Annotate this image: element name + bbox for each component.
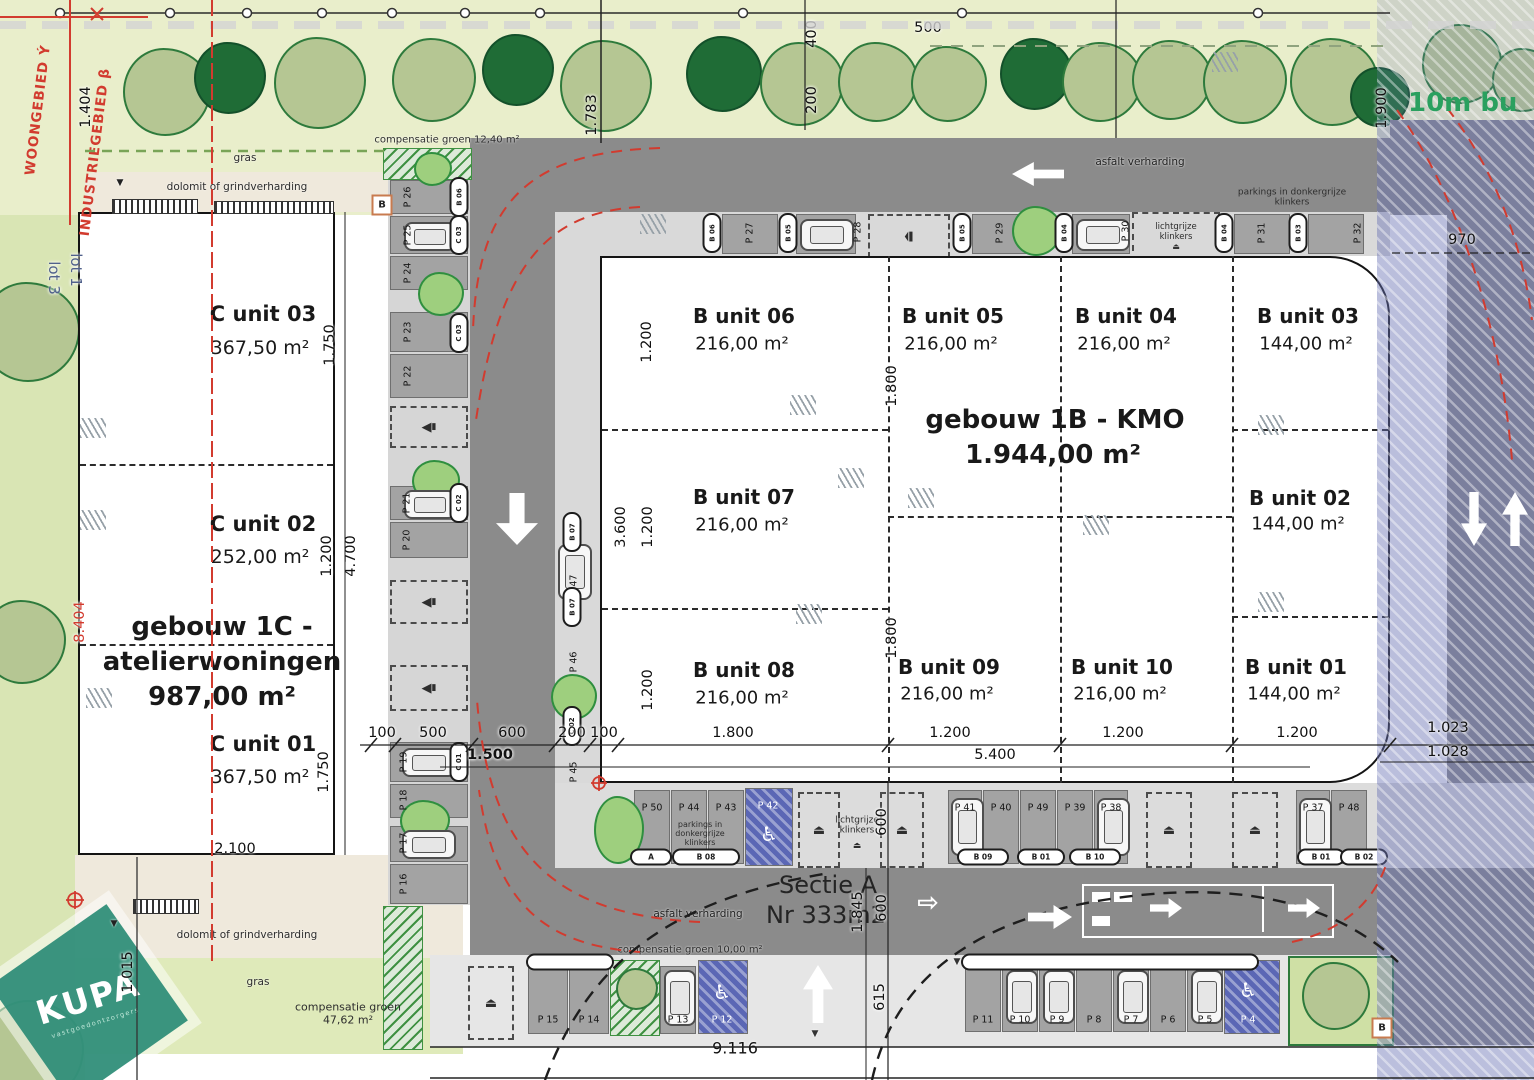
parking-spot-label: P 24 bbox=[403, 263, 414, 284]
dim: 615 bbox=[872, 983, 888, 1011]
wheelchair-icon: ♿ bbox=[1239, 978, 1257, 1002]
conifer-mark bbox=[796, 604, 822, 624]
unit-c01-name: C unit 01 bbox=[210, 732, 316, 756]
parking-spot-label: P 10 bbox=[1010, 1015, 1031, 1026]
unit-b09-name: B unit 09 bbox=[898, 655, 1000, 679]
parking-spot-label: P 8 bbox=[1087, 1015, 1102, 1026]
unit-ref-capsule: B 04 bbox=[1215, 213, 1234, 253]
comp47-label: compensatie groen47,62 m² bbox=[273, 1001, 423, 1026]
dim: 1.800 bbox=[884, 365, 900, 407]
garage-box: ◀▮ bbox=[390, 665, 468, 711]
site-plan: C unit 03 367,50 m² C unit 02 252,00 m² … bbox=[0, 0, 1534, 1080]
garage-box: ⏏ bbox=[1146, 792, 1192, 868]
unit-ref-capsule: B 06 bbox=[703, 213, 722, 253]
gras-label-top: gras bbox=[234, 152, 257, 164]
garage-box: ◀▮ bbox=[390, 406, 468, 448]
garage-box: ⏏ bbox=[468, 966, 514, 1040]
asfalt-label-bottom: asfalt verharding bbox=[653, 908, 742, 920]
unit-b02-area: 144,00 m² bbox=[1251, 514, 1344, 535]
parking-spot-label: P 44 bbox=[679, 803, 700, 814]
parking-spot-label: P 25 bbox=[403, 225, 414, 246]
conifer-mark bbox=[790, 395, 816, 415]
dim: 1.200 bbox=[929, 725, 971, 741]
parking-spot-label: P 43 bbox=[716, 803, 737, 814]
parking-spot-label: P 14 bbox=[579, 1015, 600, 1026]
parking-spot-label: P 38 bbox=[1101, 803, 1122, 814]
unit-b03-name: B unit 03 bbox=[1257, 304, 1359, 328]
parking-spot-label: P 13 bbox=[668, 1015, 689, 1026]
lichtgrijze-klinkers-label: lichtgrijze klinkers bbox=[1144, 223, 1208, 243]
parking-spot-label: P 32 bbox=[1353, 223, 1364, 244]
parking-spot-label: P 49 bbox=[1028, 803, 1049, 814]
unit-b02-name: B unit 02 bbox=[1249, 486, 1351, 510]
parking-spot-label: P 41 bbox=[955, 803, 976, 814]
parking-spot-label: P 16 bbox=[399, 874, 410, 895]
stairs-icon bbox=[133, 899, 199, 914]
unit-b01-area: 144,00 m² bbox=[1247, 684, 1340, 705]
dim: 500 bbox=[419, 725, 447, 741]
dim: 2.100 bbox=[214, 841, 256, 857]
garage-door-icon: ⏏ bbox=[1172, 242, 1180, 251]
gras-label-bottom: gras bbox=[247, 976, 270, 988]
unit-c01-area: 367,50 m² bbox=[211, 766, 310, 788]
parking-spot-label: P 20 bbox=[402, 530, 413, 551]
unit-b04-area: 216,00 m² bbox=[1077, 334, 1170, 355]
compensatie-strip-left bbox=[383, 906, 423, 1050]
unit-c02-name: C unit 02 bbox=[210, 512, 316, 536]
conifer-mark bbox=[1212, 52, 1238, 72]
parkings-klinkers-label-bottom: parkings in donkergrijze klinkers bbox=[663, 820, 737, 848]
parkings-klinkers-label-top: parkings in donkergrijze klinkers bbox=[1236, 188, 1348, 209]
dim: 600 bbox=[874, 808, 890, 836]
unit-b05-name: B unit 05 bbox=[902, 304, 1004, 328]
dim: 1.783 bbox=[584, 94, 600, 136]
dim: 4.700 bbox=[343, 535, 359, 577]
dim: 970 bbox=[1448, 232, 1476, 248]
dim: 100 bbox=[368, 725, 396, 741]
drain-icon: ▼ bbox=[117, 178, 124, 188]
unit-b06-area: 216,00 m² bbox=[695, 334, 788, 355]
right-white-strip bbox=[1390, 215, 1447, 868]
conifer-mark bbox=[1083, 515, 1109, 535]
parking-spot-label: P 26 bbox=[403, 187, 414, 208]
parking-spot-label: P 19 bbox=[399, 752, 410, 773]
parking-spot-label: P 7 bbox=[1124, 1015, 1139, 1026]
garage-box: ⏏ bbox=[868, 214, 950, 258]
parking-spot-label: P 39 bbox=[1065, 803, 1086, 814]
unit-b06-name: B unit 06 bbox=[693, 304, 795, 328]
parking-spot-label: P 37 bbox=[1303, 803, 1324, 814]
dim: 1.200 bbox=[1102, 725, 1144, 741]
dim: 1.200 bbox=[639, 321, 655, 363]
dim: 600 bbox=[498, 725, 526, 741]
parking-spot-label: P 9 bbox=[1050, 1015, 1065, 1026]
unit-b01-name: B unit 01 bbox=[1245, 655, 1347, 679]
unit-ref-capsule: B 03 bbox=[1289, 213, 1308, 253]
road-top bbox=[470, 138, 1534, 212]
dim: 1.023 bbox=[1427, 720, 1469, 736]
parking-spot-label: P 18 bbox=[399, 790, 410, 811]
dim: 100 bbox=[590, 725, 618, 741]
dim: 1.500 bbox=[467, 747, 513, 763]
parking-spot-label: P 40 bbox=[991, 803, 1012, 814]
car-icon bbox=[402, 830, 456, 859]
parking-spot-label: P 12 bbox=[712, 1015, 733, 1026]
parking-spot-label: P 22 bbox=[403, 366, 414, 387]
conifer-mark bbox=[838, 468, 864, 488]
unit-ref-capsule: B 07 bbox=[563, 587, 582, 627]
dim: 9.116 bbox=[712, 1039, 758, 1058]
parking-spot-label: P 6 bbox=[1161, 1015, 1176, 1026]
dim: 600 bbox=[874, 894, 890, 922]
unit-ref-capsule: B 05 bbox=[779, 213, 798, 253]
car-icon bbox=[800, 219, 854, 251]
unit-b10-area: 216,00 m² bbox=[1073, 684, 1166, 705]
stairs-icon bbox=[112, 199, 198, 214]
parking-spot-label: P 45 bbox=[569, 762, 580, 783]
unit-b05-area: 216,00 m² bbox=[904, 334, 997, 355]
dim: 1.028 bbox=[1427, 744, 1469, 760]
dim: 8.404 bbox=[72, 601, 88, 643]
unit-c03-name: C unit 03 bbox=[210, 302, 316, 326]
comp12-label: compensatie groen 12,40 m² bbox=[374, 135, 519, 146]
unit-b07-name: B unit 07 bbox=[693, 485, 795, 509]
unit-ref-capsule: C 03 bbox=[450, 215, 469, 255]
dim: 1.845 bbox=[850, 891, 866, 933]
marker: ⏏ bbox=[853, 841, 862, 851]
garage-box: ⏏ bbox=[1232, 792, 1278, 868]
parking-spot-label: P 48 bbox=[1339, 803, 1360, 814]
section-marker-b-top: B bbox=[372, 195, 393, 216]
conifer-mark bbox=[80, 418, 106, 438]
dim: 200 bbox=[558, 725, 586, 741]
dim: 1.200 bbox=[640, 506, 656, 548]
lot1-label: lot 1 bbox=[67, 253, 85, 287]
unit-ref-capsule: B 02 bbox=[1340, 849, 1388, 866]
asfalt-label-top: asfalt verharding bbox=[1095, 156, 1184, 168]
dim: 1.800 bbox=[884, 617, 900, 659]
unit-ref-capsule: C 03 bbox=[450, 313, 469, 353]
unit-ref-capsule: B 07 bbox=[563, 512, 582, 552]
drain-icon: ▼ bbox=[111, 919, 118, 929]
parking-spot-label: P 42 bbox=[758, 801, 779, 812]
unit-b08-name: B unit 08 bbox=[693, 658, 795, 682]
dolomit-label-bottom: dolomit of grindverharding bbox=[177, 929, 318, 941]
unit-ref-capsule: B 01 bbox=[1297, 849, 1345, 866]
unit-ref-capsule: C 01 bbox=[450, 742, 469, 782]
garage-door-capsule bbox=[526, 954, 614, 971]
building-1b-title: gebouw 1B - KMO bbox=[925, 405, 1184, 435]
unit-b07-area: 216,00 m² bbox=[695, 515, 788, 536]
dim: 1.015 bbox=[120, 951, 136, 993]
parking-spot-label: P 15 bbox=[538, 1015, 559, 1026]
parking-spot-label: P 11 bbox=[973, 1015, 994, 1026]
parking-spot-label: P 17 bbox=[399, 833, 410, 854]
parking-spot-label: P 50 bbox=[642, 803, 663, 814]
parking-spot-label: P 46 bbox=[569, 652, 580, 673]
building-1b-area: 1.944,00 m² bbox=[965, 440, 1141, 470]
wheelchair-icon: ♿ bbox=[713, 980, 731, 1004]
unit-b09-area: 216,00 m² bbox=[900, 684, 993, 705]
unit-ref-capsule: B 08 bbox=[672, 849, 740, 866]
building-1c-title: gebouw 1C - bbox=[131, 612, 312, 642]
conifer-mark bbox=[1258, 415, 1284, 435]
dim: 200 bbox=[804, 86, 820, 114]
wheelchair-icon: ♿ bbox=[760, 822, 778, 846]
unit-c02-area: 252,00 m² bbox=[211, 546, 310, 568]
bufferzone-label: 10m bu bbox=[1408, 88, 1517, 118]
conifer-mark bbox=[640, 214, 666, 234]
dim: 1.200 bbox=[1276, 725, 1318, 741]
dim: 1.900 bbox=[1374, 87, 1390, 129]
comp10-label: compensatie groen 10,00 m² bbox=[617, 945, 762, 956]
unit-ref-capsule: B 01 bbox=[1017, 849, 1065, 866]
unit-b08-area: 216,00 m² bbox=[695, 688, 788, 709]
lichtgrijze-klinkers-box: lichtgrijze klinkers ⏏ bbox=[1132, 212, 1220, 262]
dim: 1.750 bbox=[316, 751, 332, 793]
road-left bbox=[470, 138, 555, 965]
car-icon bbox=[402, 748, 456, 777]
parking-spot-label: P 23 bbox=[403, 322, 414, 343]
conifer-mark bbox=[86, 688, 112, 708]
unit-ref-capsule: B 05 bbox=[953, 213, 972, 253]
dim: 1.750 bbox=[322, 324, 338, 366]
unit-b03-area: 144,00 m² bbox=[1259, 334, 1352, 355]
dim: 400 bbox=[804, 20, 820, 48]
conifer-mark bbox=[1258, 592, 1284, 612]
marker-down: ▼ bbox=[812, 1029, 819, 1039]
parking-spot-label: P 4 bbox=[1241, 1015, 1256, 1026]
section-marker-b-bottom: B bbox=[1372, 1018, 1393, 1039]
unit-ref-capsule: B 04 bbox=[1055, 213, 1074, 253]
stairs-icon bbox=[214, 201, 334, 214]
dim: 1.800 bbox=[712, 725, 754, 741]
sectie-nr-label: Nr 333m2 bbox=[766, 901, 886, 929]
garage-box: ◀▮ bbox=[390, 580, 468, 624]
garage-door-capsule bbox=[961, 954, 1259, 971]
dim: 500 bbox=[914, 20, 942, 36]
parking-spot-label: P 21 bbox=[402, 493, 413, 514]
unit-ref-capsule: B 10 bbox=[1069, 849, 1121, 866]
parking-spot-label: P 5 bbox=[1198, 1015, 1213, 1026]
dim: 1.200 bbox=[319, 535, 335, 577]
parking-spot-label: P 29 bbox=[995, 223, 1006, 244]
unit-ref-capsule: C 02 bbox=[450, 483, 469, 523]
arrow-right-outline-icon: ⇨ bbox=[917, 888, 939, 918]
dim: 5.400 bbox=[974, 747, 1016, 763]
parking-spot-label: P 31 bbox=[1257, 223, 1268, 244]
unit-b10-name: B unit 10 bbox=[1071, 655, 1173, 679]
parking-spot-label: P 28 bbox=[853, 222, 864, 243]
conifer-mark bbox=[908, 488, 934, 508]
unit-ref-capsule: B 06 bbox=[450, 177, 469, 217]
unit-b04-name: B unit 04 bbox=[1075, 304, 1177, 328]
parking-spot-label: P 30 bbox=[1121, 221, 1132, 242]
unit-c03-area: 367,50 m² bbox=[211, 337, 310, 359]
building-1c-subtitle: atelierwoningen bbox=[103, 647, 341, 677]
dim: 3.600 bbox=[613, 506, 629, 548]
unit-ref-capsule: B 09 bbox=[957, 849, 1009, 866]
parking-spot-label: P 27 bbox=[745, 223, 756, 244]
unit-ref-capsule: A bbox=[630, 849, 672, 866]
dolomit-label-top: dolomit of grindverharding bbox=[167, 181, 308, 193]
conifer-mark bbox=[80, 510, 106, 530]
lot3-label: lot 3 bbox=[45, 261, 63, 295]
marker-down: ▼ bbox=[954, 957, 961, 967]
dim: 1.200 bbox=[640, 669, 656, 711]
building-1c-area: 987,00 m² bbox=[148, 682, 296, 712]
